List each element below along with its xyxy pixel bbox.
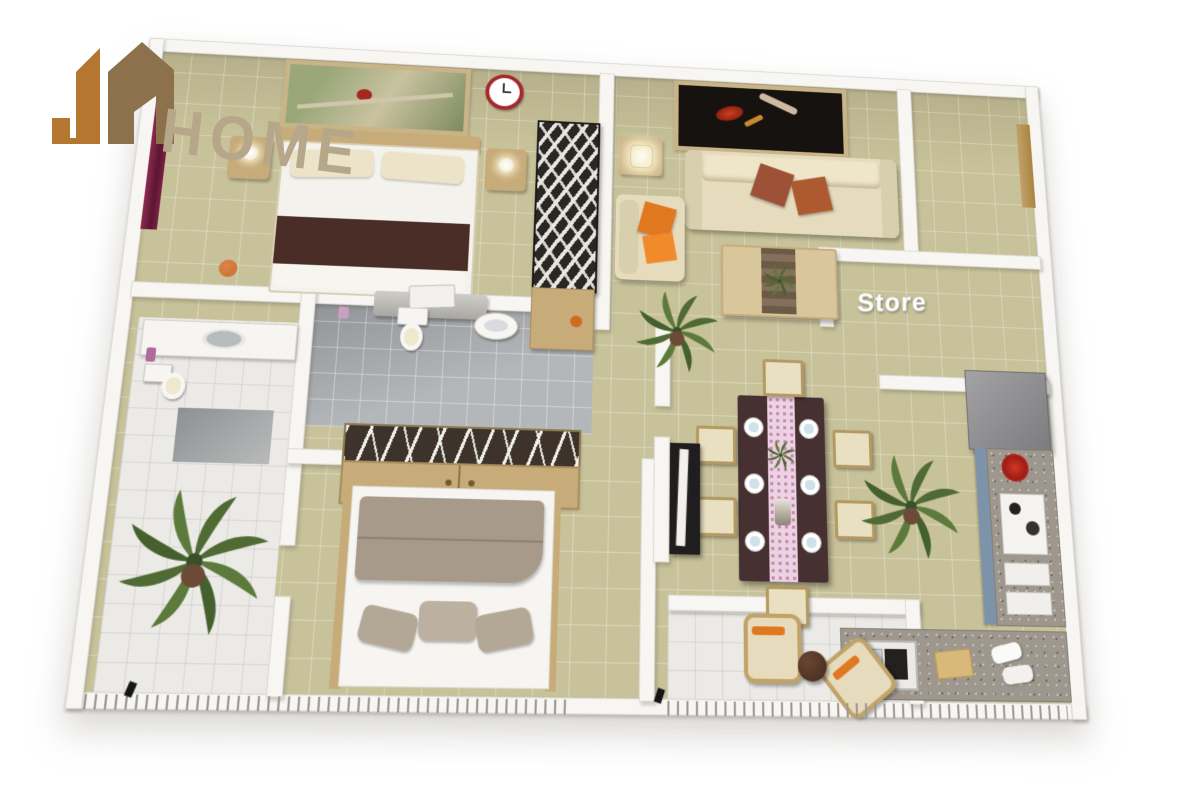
sofa-arm-left xyxy=(685,150,702,230)
dancer-figure-light xyxy=(758,92,798,115)
palm-plant-balcony xyxy=(120,495,266,629)
table-runner xyxy=(767,396,798,582)
tv-screen-edge xyxy=(676,449,689,546)
hob-grate-2 xyxy=(1006,592,1053,616)
table-lamp-icon xyxy=(498,158,514,173)
towel-2 xyxy=(1002,664,1035,685)
stove xyxy=(999,493,1048,555)
palm-plant-living xyxy=(630,284,724,379)
coffee-table xyxy=(721,244,839,320)
armchair-arm xyxy=(619,200,639,275)
candle-decor xyxy=(775,498,792,525)
bed-second xyxy=(329,481,562,692)
floor-lamp-icon xyxy=(630,144,653,168)
red-bowl xyxy=(1001,453,1030,482)
refrigerator xyxy=(964,370,1051,452)
pot-2 xyxy=(1025,521,1040,536)
towel-1 xyxy=(990,641,1024,665)
zebra-shelf xyxy=(531,120,600,293)
terrace-armchair-1 xyxy=(743,613,802,684)
dining-centerpiece-plant xyxy=(758,431,804,479)
dining-table xyxy=(738,395,829,583)
bed-blanket xyxy=(273,216,470,271)
dining-chair-left-1 xyxy=(696,425,736,464)
hob-grate-1 xyxy=(1004,562,1051,586)
logo-home-wordmark: HOME xyxy=(157,94,366,190)
palm-plant-dining xyxy=(857,452,965,561)
blanket-fold-line xyxy=(357,537,543,543)
tv-screen xyxy=(409,284,456,308)
soap-bottle xyxy=(145,347,156,361)
divider-cabinet xyxy=(529,287,594,351)
kitchen-counter-right xyxy=(986,448,1066,627)
armchair-accent-1 xyxy=(752,626,785,635)
lamp-side-table xyxy=(618,137,662,177)
nightstand-right xyxy=(485,148,528,192)
centerpiece-plant xyxy=(755,257,804,306)
tv-dresser xyxy=(373,291,487,320)
tv-cabinet xyxy=(669,443,700,555)
place-setting-3 xyxy=(745,531,765,552)
jm-home-logo: HOME xyxy=(38,28,418,198)
sofa xyxy=(685,150,900,239)
round-side-table xyxy=(798,651,828,682)
dancer-figure-red xyxy=(714,104,745,123)
bed2-blanket xyxy=(354,496,544,583)
place-setting-6 xyxy=(801,532,822,553)
bed2-pillow-2 xyxy=(417,601,477,642)
sink-basin xyxy=(484,319,509,333)
dining-chair-left-2 xyxy=(696,496,737,536)
armchair xyxy=(615,194,685,282)
clock-hand-2 xyxy=(504,91,512,93)
wall-art-dancers xyxy=(674,80,849,158)
pot-1 xyxy=(1009,502,1021,514)
store-room-label: Store xyxy=(857,288,927,318)
floorplan-render: HOME xyxy=(0,0,1200,800)
dining-chair-top xyxy=(763,359,805,397)
toiletry-holder xyxy=(338,307,349,319)
armchair-accent-2 xyxy=(832,654,861,681)
bath2-counter xyxy=(140,319,299,360)
counter-sink xyxy=(201,328,247,349)
cutting-board xyxy=(934,648,974,680)
sofa-arm-right xyxy=(880,159,900,238)
dancer-figure-gold xyxy=(744,114,764,127)
wall-tv-stub xyxy=(653,436,670,562)
bath2-wet-floor xyxy=(172,408,274,465)
orange-cushion-2 xyxy=(642,233,677,264)
